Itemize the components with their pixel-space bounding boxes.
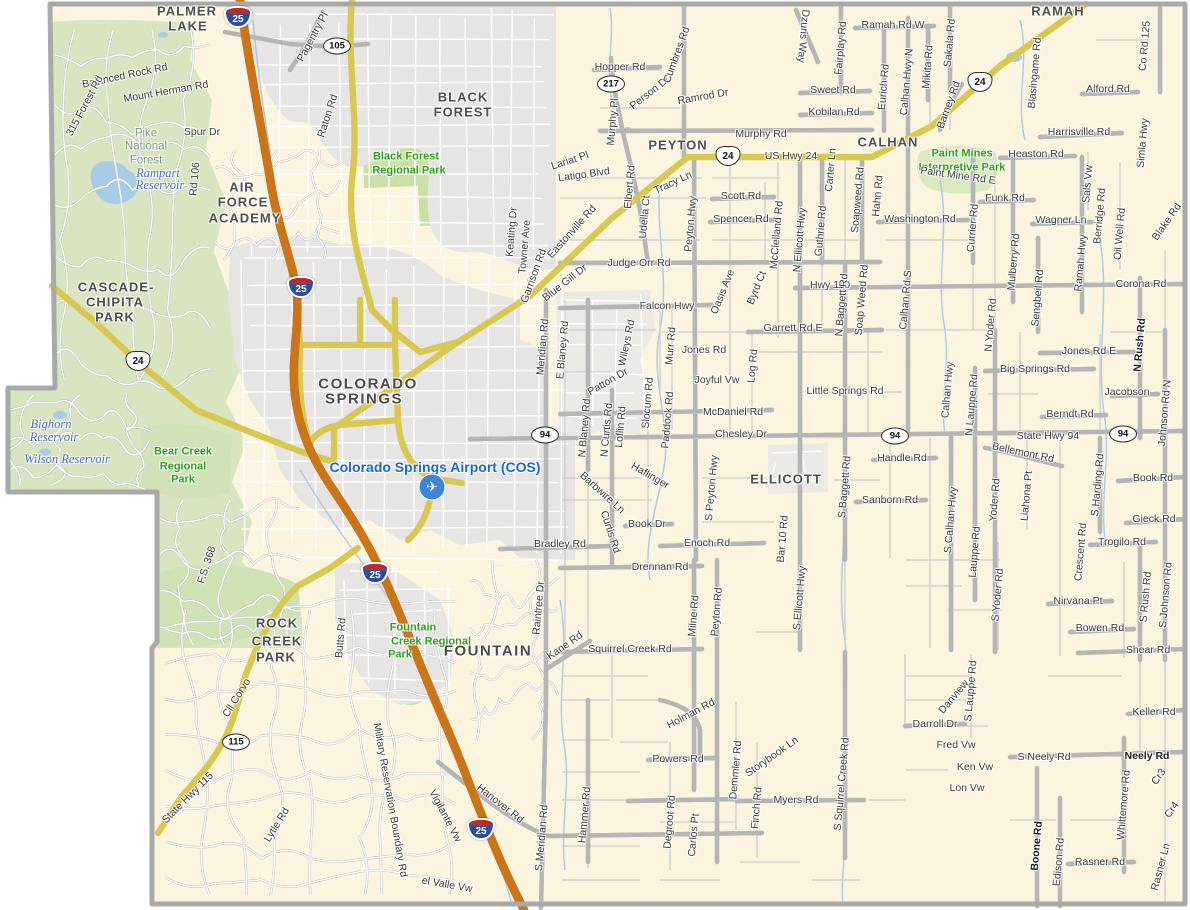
ramah-hwy-label: Ramah Hwy — [1073, 234, 1088, 292]
vigilante-vw-label: Vigilante Vw — [427, 788, 463, 844]
butts-rd-label: Butts Rd — [334, 617, 348, 658]
carlos-pt-label: Carlos Pt — [687, 813, 701, 857]
route-number: 217 — [603, 79, 619, 90]
mount-herman-rd-label: Mount Herman Rd — [123, 79, 209, 104]
route-number: 115 — [228, 737, 243, 748]
rock-label: ROCK — [256, 617, 298, 630]
s-ellicott-hwy-label: S Ellicott Hwy — [792, 566, 808, 631]
harrisville-rd-label: Harrisville Rd — [1048, 127, 1110, 138]
bar-10-rd-label: Bar 10 Rd — [776, 515, 791, 563]
log-rd-label: Log Rd — [746, 349, 759, 384]
shear-rd-label: Shear Rd — [1126, 645, 1170, 656]
oasis-ave-label: Oasis Ave — [709, 268, 736, 316]
black-forest-label: Black Forest — [373, 152, 439, 163]
wagner-ln-label: Wagner Ln — [1036, 215, 1087, 226]
route-number: 94 — [1118, 429, 1129, 440]
cr3-label: Cr3 — [1150, 767, 1168, 787]
yoder-rd-label: Yoder Rd — [988, 478, 1002, 522]
rd-106-label: Rd 106 — [188, 162, 201, 197]
route-number: 105 — [329, 41, 345, 52]
byrd-ct-label: Byrd Ct — [746, 270, 769, 306]
state-hwy-94-label: State Hwy 94 — [1017, 431, 1079, 442]
heaston-rd-label: Heaston Rd — [1008, 149, 1063, 160]
us-hwy-24-label: US Hwy 24 — [765, 151, 818, 162]
funk-rd-label: Funk Rd — [985, 193, 1025, 204]
paint-mines-label: Paint Mines — [931, 149, 992, 160]
raton-rd-label: Raton Rd — [316, 93, 340, 138]
garrett-rd-e-label: Garrett Rd E — [764, 323, 823, 334]
force-label: FORCE — [218, 196, 269, 209]
lauppe-rd-label: Lauppe Rd — [968, 526, 983, 578]
murphy-pl-label: Murphy Pl — [606, 98, 621, 146]
lake-label: LAKE — [168, 20, 207, 33]
n-rush-rd-label: N Rush Rd — [1132, 318, 1147, 372]
oil-well-rd-label: Oil Well Rd — [1112, 207, 1127, 260]
demmler-rd-label: Demmler Rd — [728, 740, 744, 800]
ellicott-label: ELLICOTT — [750, 473, 822, 486]
finch-rd-label: Finch Rd — [750, 787, 764, 830]
dzuris-way-label: Dzuris Way — [795, 9, 810, 63]
route-shield-us-24: 24 — [126, 351, 151, 371]
n-blaney-rd-label: N Blaney Rd — [577, 398, 593, 458]
barney-rd-label: Barney Rd — [936, 80, 963, 130]
haflinger-label: Haflinger — [629, 461, 671, 491]
bear-creek-label: Bear Creek — [154, 447, 212, 458]
route-shield-state-94: 94 — [881, 428, 909, 445]
airplane-glyph: ✈ — [426, 479, 438, 496]
hahn-rd-label: Hahn Rd — [871, 175, 885, 217]
calhan-label: CALHAN — [858, 136, 919, 149]
forest-label: FOREST — [434, 106, 493, 119]
chipita-label: CHIPITA — [86, 296, 144, 309]
fred-vw-label: Fred Vw — [936, 740, 975, 751]
bighorn-label: Bighorn — [31, 418, 72, 431]
route-number: 24 — [722, 151, 733, 162]
s-rush-rd-label: S Rush Rd — [1139, 571, 1154, 623]
map-viewport[interactable]: PALMERLAKEBLACKFORESTAIRFORCEACADEMYCASC… — [0, 0, 1190, 910]
washington-rd-label: Washington Rd — [884, 214, 955, 225]
pike-label: Pike — [135, 128, 157, 140]
elbert-rd-label: Elbert Rd — [623, 165, 637, 210]
cascade-label: CASCADE- — [78, 281, 155, 294]
el-valle-vw-label: el Valle Vw — [421, 875, 473, 894]
judge-orr-rd-label: Judge Orr Rd — [607, 258, 670, 269]
rasner-ln-label: Rasner Ln — [1150, 842, 1173, 892]
bradley-rd-label: Bradley Rd — [534, 539, 586, 550]
academy-label: ACADEMY — [209, 212, 282, 225]
cumbres-rd-label: Cumbres Rd — [662, 26, 692, 85]
s-squirrel-creek-rd-label: S Squirrel Creek Rd — [833, 737, 852, 831]
route-shield-state-94: 94 — [1109, 426, 1137, 443]
currier-rd-label: Currier Rd — [966, 203, 981, 252]
kane-rd-label: Kane Rd — [545, 630, 585, 662]
tracy-ln-label: Tracy Ln — [652, 170, 693, 197]
blue-gill-dr-label: Blue Gill Dr — [541, 263, 589, 304]
mcclelland-rd-label: McClelland Rd — [769, 201, 785, 270]
bowen-rd-label: Bowen Rd — [1076, 623, 1124, 634]
storybook-ln-label: Storybook Ln — [744, 735, 801, 779]
alford-rd-label: Alford Rd — [1086, 84, 1130, 95]
route-shield-state-105: 105 — [323, 38, 351, 55]
edison-rd-label: Edison Rd — [1052, 837, 1067, 886]
route-shield-state-217: 217 — [597, 76, 625, 93]
route-shield-interstate-25: 25 — [287, 276, 315, 298]
black-label: BLACK — [438, 91, 489, 104]
fountain-label: Fountain — [390, 623, 436, 634]
jones-rd-label: Jones Rd — [682, 345, 726, 356]
national-label: National — [125, 141, 167, 153]
slocum-rd-label: Slocum Rd — [641, 377, 656, 429]
reservoir-label: Reservoir — [136, 179, 185, 192]
udella-ct-label: Udella Ct — [638, 195, 652, 239]
johnson-rd-n-label: Johnson Rd N — [1157, 379, 1173, 446]
milne-rd-label: Milne Rd — [687, 595, 701, 637]
peyton-label: PEYTON — [648, 139, 707, 152]
s-peyton-hwy-label: S Peyton Hwy — [704, 455, 720, 522]
latigo-blvd-label: Latigo Blvd — [558, 166, 611, 184]
co-rd-125-label: Co Rd 125 — [1138, 21, 1153, 72]
ramah-label: RAMAH — [1031, 5, 1084, 18]
fairplay-rd-label: Fairplay Rd — [833, 21, 848, 75]
sanborn-rd-label: Sanborn Rd — [862, 495, 918, 506]
n-ellicott-hwy-label: N Ellicott Hwy — [792, 207, 808, 272]
blasingame-rd-label: Blasingame Rd — [1027, 37, 1044, 109]
mulberry-rd-label: Mulberry Rd — [1006, 233, 1021, 291]
wilson-reservoir-label: Wilson Reservoir — [24, 453, 110, 466]
calhan-rd-s-label: Calhan Rd S — [898, 270, 914, 330]
route-number: 94 — [540, 430, 551, 441]
colorado-label: COLORADO — [318, 377, 418, 392]
jacobson-label: Jacobson — [1105, 387, 1150, 398]
airport-icon: ✈ — [419, 474, 446, 501]
pagentry-pl-label: Pagentry Pl — [296, 11, 331, 64]
park-label: PARK — [256, 651, 296, 664]
blake-rd-label: Blake Rd — [1150, 202, 1183, 243]
creek-regional-label: Creek Regional — [391, 637, 471, 648]
s-lauppe-rd-label: S Lauppe Rd — [963, 660, 979, 722]
book-rd-label: Book Rd — [1133, 473, 1173, 484]
s-calhan-hwy-label: S Calhan Hwy — [943, 486, 959, 553]
s-yoder-rd-label: S Yoder Rd — [990, 568, 1005, 622]
cll-corvo-label: Cll Corvo — [221, 677, 253, 719]
kobilan-rd-label: Kobilan Rd — [808, 107, 859, 118]
falcon-hwy-label: Falcon Hwy — [640, 301, 695, 312]
peyton-rd-label: Peyton Rd — [710, 587, 725, 637]
route-shield-us-24: 24 — [716, 146, 741, 166]
route-number: 24 — [132, 356, 143, 367]
murr-rd-label: Murr Rd — [664, 327, 678, 366]
park-label: PARK — [95, 311, 135, 324]
springs-label: SPRINGS — [325, 392, 403, 407]
trogilo-rd-label: Trogilo Rd — [1098, 537, 1146, 548]
sengbeil-rd-label: Sengbeil Rd — [1030, 269, 1045, 327]
darroll-dr-label: Darroll Dr — [913, 719, 958, 730]
rasner-rd-label: Rasner Rd — [1075, 857, 1125, 868]
route-shield-interstate-25: 25 — [224, 6, 252, 28]
park-label: Park — [171, 475, 195, 486]
creek-label: CREEK — [252, 635, 303, 648]
route-number: 25 — [295, 284, 306, 295]
s-baggett-rd-label: S Baggett Rd — [837, 455, 853, 518]
soapweed-rd-label: Soapweed Rd — [850, 167, 866, 234]
murphy-rd-label: Murphy Rd — [735, 129, 786, 140]
peyton-hwy-label: Peyton Hwy — [683, 196, 698, 253]
mikita-rd-label: Mikita Rd — [921, 45, 935, 90]
paddock-rd-label: Paddock Rd — [660, 391, 675, 449]
carter-ln-label: Carter Ln — [824, 148, 838, 193]
nirvana-pt-label: Nirvana Pt — [1053, 596, 1102, 607]
s-meridian-rd-label: S Meridian Rd — [534, 804, 550, 871]
myers-rd-label: Myers Rd — [774, 795, 819, 806]
spur-dr-label: Spur Dr — [184, 127, 220, 138]
calhan-hwy-label: Calhan Hwy — [940, 361, 955, 418]
scott-rd-label: Scott Rd — [721, 191, 761, 202]
bellemont-rd-label: Bellemont Rd — [991, 441, 1055, 464]
palmer-label: PALMER — [157, 5, 217, 18]
wileys-rd-label: Wileys Rd — [617, 319, 637, 367]
whittemore-rd-label: Whittemore Rd — [1116, 770, 1133, 841]
route-shield-us-24: 24 — [968, 72, 993, 92]
guthrie-rd-label: Guthrie Rd — [814, 205, 829, 257]
handle-rd-label: Handle Rd — [877, 453, 927, 464]
military-reservation-boundary-rd-label: Military Reservation Boundary Rd — [371, 722, 409, 878]
calhan-hwy-n-label: Calhan Hwy N — [899, 48, 915, 116]
lytle-rd-label: Lytle Rd — [262, 806, 291, 844]
n-yoder-rd-label: N Yoder Rd — [983, 298, 998, 352]
big-springs-rd-label: Big Springs Rd — [1000, 364, 1070, 375]
route-number: 25 — [232, 14, 243, 25]
route-shield-interstate-25: 25 — [361, 562, 389, 584]
n-lauppe-rd-label: N Lauppe Rd — [964, 374, 980, 437]
gieck-rd-label: Gieck Rd — [1132, 514, 1175, 525]
colorado-springs-airport-cos-label: Colorado Springs Airport (COS) — [329, 460, 540, 474]
route-number: 25 — [475, 826, 486, 837]
regional-label: Regional — [160, 462, 206, 473]
neely-rd-label: Neely Rd — [1125, 751, 1170, 762]
joyful-vw-label: Joyful Vw — [695, 375, 740, 386]
enoch-rd-label: Enoch Rd — [684, 538, 730, 549]
ramrod-dr-label: Ramrod Dr — [677, 87, 729, 106]
meridian-rd-label: Meridian Rd — [535, 318, 550, 375]
hammer-rd-label: Hammer Rd — [577, 786, 592, 843]
keller-rd-label: Keller Rd — [1132, 707, 1175, 718]
route-shield-state-115: 115 — [222, 734, 250, 751]
barbwire-ln-label: Barbwire Ln — [578, 470, 627, 515]
route-shield-interstate-25: 25 — [467, 818, 495, 840]
holman-rd-label: Holman Rd — [665, 697, 716, 731]
raintree-dr-label: Raintree Dr — [531, 581, 546, 635]
reservoir-label: Reservoir — [30, 431, 79, 444]
lon-vw-label: Lon Vw — [949, 783, 984, 794]
patton-dr-label: Patton Dr — [586, 366, 630, 397]
route-number: 25 — [369, 570, 380, 581]
keating-dr-label: Keating Dr — [505, 207, 520, 257]
ramah-rd-w-label: Ramah Rd W — [861, 20, 924, 31]
park-label: Park — [388, 650, 412, 661]
boone-rd-label: Boone Rd — [1030, 821, 1045, 871]
eastonville-rd-label: Eastonville Rd — [546, 204, 599, 261]
chesley-dr-label: Chesley Dr — [715, 429, 767, 440]
route-shield-state-94: 94 — [531, 427, 559, 444]
simla-hwy-label: Simla Hwy — [1136, 118, 1151, 168]
jones-rd-e-label: Jones Rd E — [1062, 346, 1116, 357]
loflin-rd-label: Loflin Rd — [614, 406, 628, 448]
corona-rd-label: Corona Rd — [1116, 279, 1167, 290]
squirrel-creek-rd-label: Squirrel Creek Rd — [588, 644, 671, 655]
route-number: 94 — [890, 431, 901, 442]
spencer-rd-label: Spencer Rd — [713, 214, 768, 225]
berndt-rd-label: Berndt Rd — [1046, 409, 1093, 420]
s-neely-rd-label: S Neely Rd — [1017, 752, 1070, 763]
sakala-rd-label: Sakala Rd — [943, 18, 958, 67]
liahona-pt-label: Liahona Pt — [1020, 471, 1035, 522]
eurich-rd-label: Eurich Rd — [877, 64, 891, 111]
drennan-rd-label: Drennan Rd — [632, 562, 689, 573]
f-s-368-label: F.S. 368 — [196, 545, 218, 585]
air-label: AIR — [229, 181, 254, 194]
degroot-rd-label: Degroot Rd — [662, 795, 677, 849]
sals-vw-label: Sals Vw — [1081, 165, 1095, 204]
n-curtis-rd-label: N Curtis Rd — [599, 403, 614, 458]
crescent-rd-label: Crescent Rd — [1073, 522, 1089, 581]
sweet-rd-label: Sweet Rd — [810, 85, 856, 96]
state-hwy-115-label: State Hwy 115 — [160, 770, 215, 825]
cr4-label: Cr4 — [1163, 800, 1181, 820]
route-number: 24 — [974, 77, 985, 88]
curtis-rd-label: Curtis Rd — [598, 510, 622, 555]
s-johnson-rd-label: S Johnson Rd — [1158, 562, 1174, 629]
hopper-rd-label: Hopper Rd — [595, 62, 646, 73]
s-harding-rd-label: S Harding Rd — [1090, 453, 1106, 517]
map-labels-layer: PALMERLAKEBLACKFORESTAIRFORCEACADEMYCASC… — [0, 0, 1190, 910]
soap-weed-rd-label: Soap Weed Rd — [854, 264, 871, 336]
powers-rd-label: Powers Rd — [652, 754, 703, 765]
mcdaniel-rd-label: McDaniel Rd — [703, 407, 763, 418]
little-springs-rd-label: Little Springs Rd — [806, 386, 883, 397]
ken-vw-label: Ken Vw — [957, 762, 993, 773]
book-dr-label: Book Dr — [628, 519, 666, 530]
regional-park-label: Regional Park — [372, 166, 445, 177]
berridge-rd-label: Berridge Rd — [1092, 188, 1107, 245]
e-blaney-rd-label: E Blaney Rd — [555, 320, 571, 379]
